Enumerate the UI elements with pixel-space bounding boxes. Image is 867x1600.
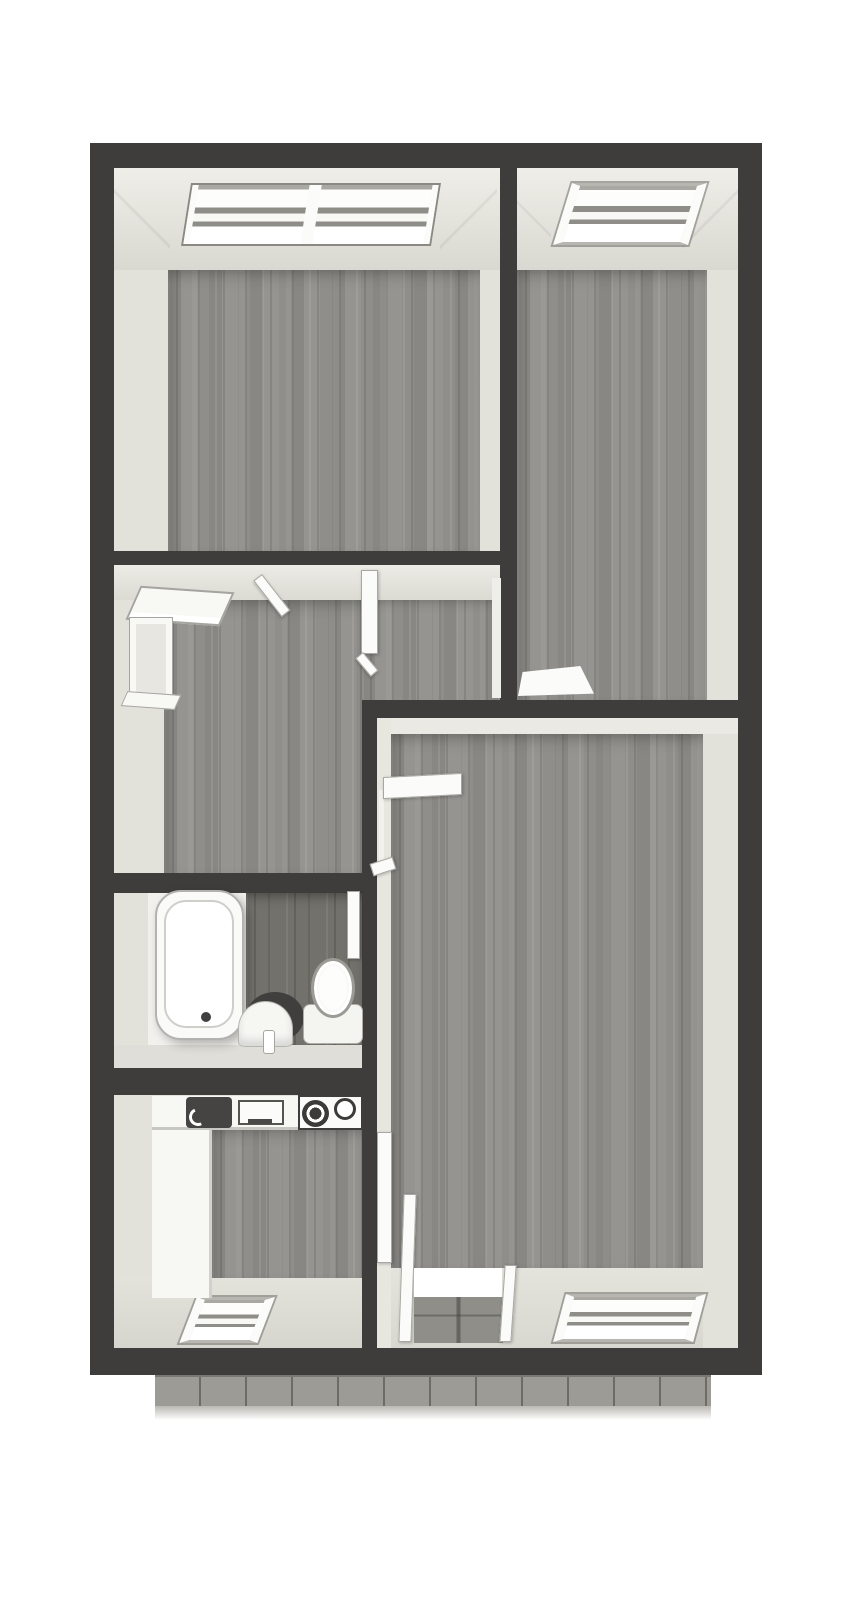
corner-seam: [440, 168, 497, 270]
balcony-terrace: [155, 1375, 711, 1406]
toilet-bowl-icon: [311, 958, 355, 1018]
door-leaf-bedroom-left-icon: [361, 570, 378, 654]
floor-kitchen: [212, 1128, 362, 1278]
window-living-icon: [553, 1294, 706, 1342]
wall-face-bathroom-bottom: [114, 1045, 362, 1068]
floor-living-room: [391, 734, 703, 1268]
floor-hallway: [164, 600, 362, 873]
door-frame-living-icon: [379, 790, 384, 870]
window-pane: [183, 185, 315, 244]
wall-hallway-bathroom: [114, 873, 362, 893]
window-bedroom-right-icon: [553, 183, 707, 245]
floor-bedroom-left: [168, 270, 480, 551]
exterior-wall-bottom: [90, 1348, 762, 1375]
door-leaf-bathroom-icon: [347, 891, 360, 959]
exterior-wall-left: [90, 143, 114, 1375]
exterior-wall-top: [90, 143, 762, 168]
balcony-shadow: [155, 1406, 711, 1420]
balcony-door-threshold: [414, 1297, 503, 1343]
wall-bathroom-kitchen: [114, 1068, 362, 1095]
wall-between-top-rooms: [500, 168, 517, 700]
balcony-doorway-opening: [414, 1268, 502, 1297]
hallway-window-icon: [130, 618, 172, 702]
cooktop-burner-left-icon: [302, 1100, 329, 1127]
floor-bedroom-right: [517, 270, 707, 700]
cooktop-burner-right-icon: [334, 1098, 356, 1120]
exterior-wall-right: [738, 143, 762, 1375]
wall-face-living-top: [377, 718, 738, 734]
wall-divider-vertical: [362, 718, 377, 1348]
door-leaf-living-icon: [383, 773, 462, 799]
wall-bedroom-hallway: [114, 551, 500, 565]
window-pane: [306, 185, 438, 244]
kitchen-drainboard-detail: [248, 1119, 272, 1124]
bathtub-basin: [164, 900, 234, 1028]
wall-living-top: [362, 700, 762, 718]
corner-seam: [114, 168, 170, 270]
bathtub-drain-icon: [201, 1012, 211, 1022]
bathroom-sink-tap-icon: [263, 1030, 275, 1054]
floor-plan-canvas: [0, 0, 867, 1600]
door-jamb-bedroom-right-icon: [492, 578, 501, 698]
corner-seam: [517, 168, 551, 270]
balcony-door-leaf-icon: [377, 1132, 392, 1263]
double-window-bedroom-left-icon: [181, 183, 441, 246]
floor-hallway-upper: [362, 600, 500, 700]
